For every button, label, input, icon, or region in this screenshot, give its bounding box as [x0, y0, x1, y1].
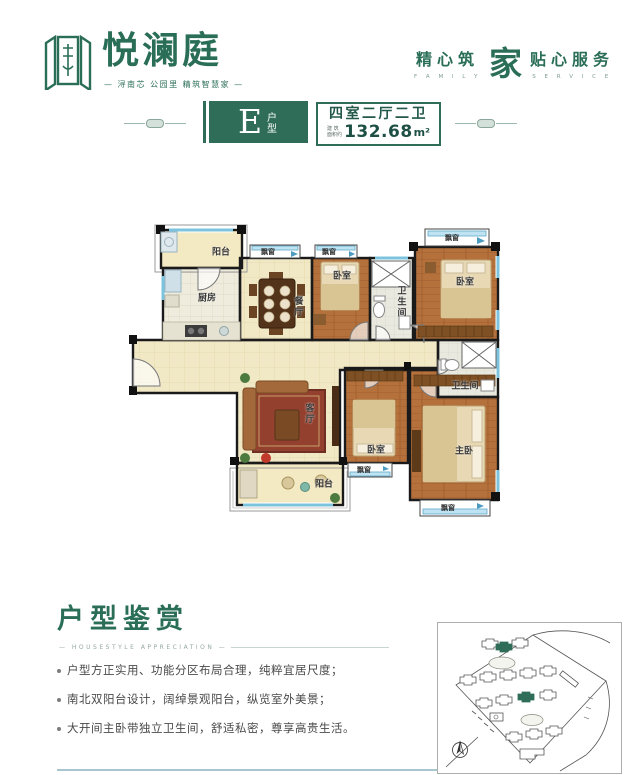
badge-accent-bar [203, 101, 206, 143]
deco-line-left [124, 120, 186, 127]
label-bay-top-right: 飘窗 [445, 233, 459, 243]
label-balcony-top: 阳台 [212, 245, 230, 258]
label-bathroom-right: 卫生间 [451, 379, 478, 392]
appreciation-subtitle-line [231, 647, 389, 648]
brand-name: 悦澜庭 [102, 32, 222, 69]
label-bedroom-top-right: 卧室 [456, 275, 474, 288]
bullet-text-3: 大开间主卧带独立卫生间，舒适私密，尊享高贵生活。 [67, 722, 355, 736]
bullet-text-1: 户型方正实用、功能分区布局合理，纯粹宜居尺度； [67, 664, 343, 678]
unit-rooms-label: 四室二厅二卫 [329, 107, 428, 122]
label-bay-master: 飘窗 [441, 503, 455, 513]
label-bedroom-top-mid: 卧室 [333, 269, 351, 282]
label-balcony-bottom: 阳台 [315, 477, 333, 490]
poster-page: 悦澜庭 — 浔南芯 公园里 精筑智慧家 — 精心筑 F A M I L Y 家 … [0, 0, 640, 775]
area-prefix-bottom: 面积约 [327, 132, 342, 138]
label-bay-top-mid: 飘窗 [322, 247, 336, 257]
label-bathroom-top: 卫生间 [395, 286, 408, 319]
label-bay-dining: 飘窗 [261, 247, 275, 257]
unit-type-badge: E 户型 [209, 101, 308, 143]
service-slogan: 精心筑 F A M I L Y 家 贴心服务 S E R V I C E [414, 46, 614, 80]
label-kitchen: 厨房 [198, 291, 216, 304]
label-bay-bottom-mid: 飘窗 [357, 465, 371, 475]
label-dining: 餐厅 [292, 296, 305, 318]
site-buildings [460, 638, 578, 759]
deco-line-right [455, 120, 517, 127]
appreciation-title: 户型鉴赏 [57, 597, 189, 636]
bullet-text-2: 南北双阳台设计，阔绰景观阳台，纵览室外美景； [67, 693, 331, 707]
brand-logo-icon [42, 32, 94, 90]
bullet-item: 南北双阳台设计，阔绰景观阳台，纵览室外美景； [57, 693, 429, 707]
service-right-text: 贴心服务 [530, 46, 614, 70]
area-value: 132.68 [344, 124, 413, 141]
bullet-dot [57, 698, 61, 702]
service-left-text: 精心筑 [416, 46, 479, 70]
unit-info-box: 四室二厅二卫 建 筑 面积约 132.68 m² [316, 102, 441, 146]
service-right-en: S E R V I C E [532, 74, 611, 80]
brand-tagline: — 浔南芯 公园里 精筑智慧家 — [104, 79, 244, 90]
site-plan-drawing [438, 623, 621, 773]
area-unit: m² [414, 127, 430, 138]
bullet-item: 大开间主卧带独立卫生间，舒适私密，尊享高贵生活。 [57, 722, 429, 736]
site-plan-box [437, 622, 622, 774]
unit-type-letter: E [238, 105, 262, 138]
label-master-bedroom: 主卧 [455, 444, 473, 457]
label-bedroom-bottom-mid: 卧室 [367, 443, 385, 456]
home-character-icon: 家 [489, 47, 522, 80]
appreciation-bullets: 户型方正实用、功能分区布局合理，纯粹宜居尺度； 南北双阳台设计，阔绰景观阳台，纵… [57, 664, 429, 750]
service-left-en: F A M I L Y [414, 74, 481, 80]
bullet-item: 户型方正实用、功能分区布局合理，纯粹宜居尺度； [57, 664, 429, 678]
appreciation-subtitle-row: — HOUSESTYLE APPRECIATION — [59, 644, 389, 651]
floor-plan: 阳台 厨房 餐厅 卧室 卫生间 卧室 客厅 阳台 卧室 卫生间 主卧 飘窗 飘窗… [125, 218, 515, 563]
appreciation-subtitle: — HOUSESTYLE APPRECIATION — [59, 644, 227, 651]
unit-type-label: 户型 [267, 113, 279, 136]
bullet-dot [57, 727, 61, 731]
label-living: 客厅 [303, 403, 316, 425]
bullet-dot [57, 669, 61, 673]
